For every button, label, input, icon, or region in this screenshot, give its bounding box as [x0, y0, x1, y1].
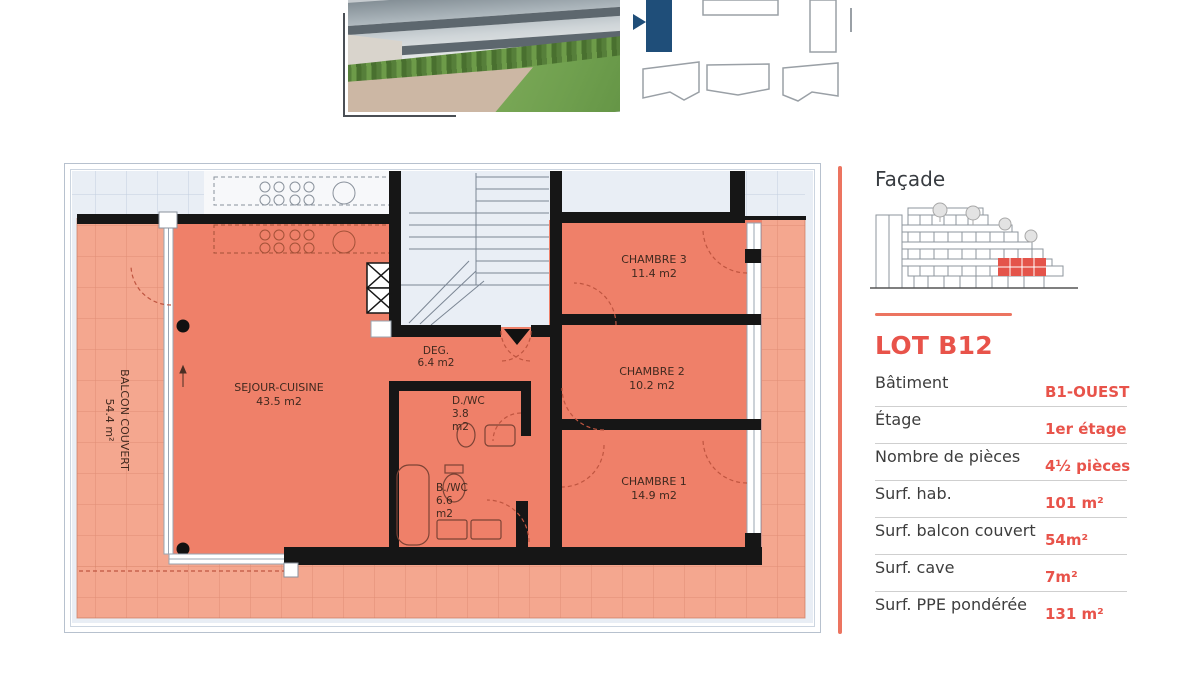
lot-row-value: 131 m² — [1045, 605, 1104, 623]
lot-row-label: Surf. cave — [875, 558, 954, 577]
neighbour-kitchen — [204, 171, 397, 220]
lot-row-value: 54m² — [1045, 531, 1088, 549]
floor-plan: SEJOUR-CUISINE 43.5 m2 DEG. 6.4 m2 CHAMB… — [64, 163, 821, 633]
lot-row-batiment: Bâtiment B1-OUEST — [875, 370, 1127, 407]
room-area-chambre2: 10.2 m2 — [629, 379, 675, 392]
facade-title: Façade — [875, 167, 945, 191]
window-junction — [159, 212, 177, 228]
lot-title: LOT B12 — [875, 331, 993, 360]
lot-row-value: B1-OUEST — [1045, 383, 1129, 401]
room-label-chambre3: CHAMBRE 3 — [621, 253, 687, 266]
site-building[interactable] — [707, 64, 769, 95]
room-label-balcon: BALCON COUVERT — [118, 369, 131, 471]
lot-row-value: 7m² — [1045, 568, 1078, 586]
room-label-dwc: D./WC — [452, 395, 485, 407]
lot-row-label: Bâtiment — [875, 373, 948, 392]
site-building[interactable] — [703, 0, 778, 15]
window-junction — [284, 563, 298, 577]
panel-divider — [838, 166, 842, 634]
stairwell — [397, 171, 549, 327]
lot-row-value: 4½ pièces — [1045, 457, 1130, 475]
lot-table: Bâtiment B1-OUEST Étage 1er étage Nombre… — [875, 370, 1127, 629]
column — [177, 320, 190, 333]
lot-row-surf-balcon: Surf. balcon couvert 54m² — [875, 518, 1127, 555]
room-area-unit-bwc: m2 — [436, 508, 453, 520]
lot-row-surf-ppe: Surf. PPE pondérée 131 m² — [875, 592, 1127, 629]
lot-row-label: Surf. PPE pondérée — [875, 595, 1027, 614]
lot-row-surf-hab: Surf. hab. 101 m² — [875, 481, 1127, 518]
room-area-balcon: 54.4 m² — [103, 398, 116, 441]
lot-row-label: Nombre de pièces — [875, 447, 1020, 466]
lot-row-surf-cave: Surf. cave 7m² — [875, 555, 1127, 592]
page: SEJOUR-CUISINE 43.5 m2 DEG. 6.4 m2 CHAMB… — [0, 0, 1200, 675]
room-area-bwc: 6.6 — [436, 495, 453, 507]
panel-rule — [875, 313, 1012, 316]
site-building-selected[interactable] — [646, 0, 672, 52]
selected-building-arrow-icon — [633, 14, 646, 30]
room-label-chambre2: CHAMBRE 2 — [619, 365, 685, 378]
lot-row-etage: Étage 1er étage — [875, 407, 1127, 444]
room-area-sejour: 43.5 m2 — [256, 395, 302, 408]
room-label-bwc: B./WC — [436, 482, 468, 494]
room-area-deg: 6.4 m2 — [418, 357, 455, 369]
room-area-dwc: 3.8 — [452, 408, 469, 420]
lot-row-label: Étage — [875, 410, 921, 429]
room-area-chambre1: 14.9 m2 — [631, 489, 677, 502]
lot-row-value: 101 m² — [1045, 494, 1104, 512]
site-building[interactable] — [643, 62, 699, 100]
lot-row-value: 1er étage — [1045, 420, 1127, 438]
room-label-sejour: SEJOUR-CUISINE — [234, 381, 323, 394]
facade-elevation — [868, 200, 1093, 300]
room-label-chambre1: CHAMBRE 1 — [621, 475, 687, 488]
door-gap — [371, 321, 391, 337]
room-area-chambre3: 11.4 m2 — [631, 267, 677, 280]
room-area-unit-dwc: m2 — [452, 421, 469, 433]
site-building[interactable] — [810, 0, 836, 52]
lot-row-label: Surf. balcon couvert — [875, 521, 1036, 540]
room-label-deg: DEG. — [423, 345, 449, 357]
lot-row-label: Surf. hab. — [875, 484, 952, 503]
site-building[interactable] — [783, 63, 838, 101]
lot-row-pieces: Nombre de pièces 4½ pièces — [875, 444, 1127, 481]
facade-highlighted-lot — [998, 258, 1046, 276]
site-map — [0, 0, 1200, 120]
